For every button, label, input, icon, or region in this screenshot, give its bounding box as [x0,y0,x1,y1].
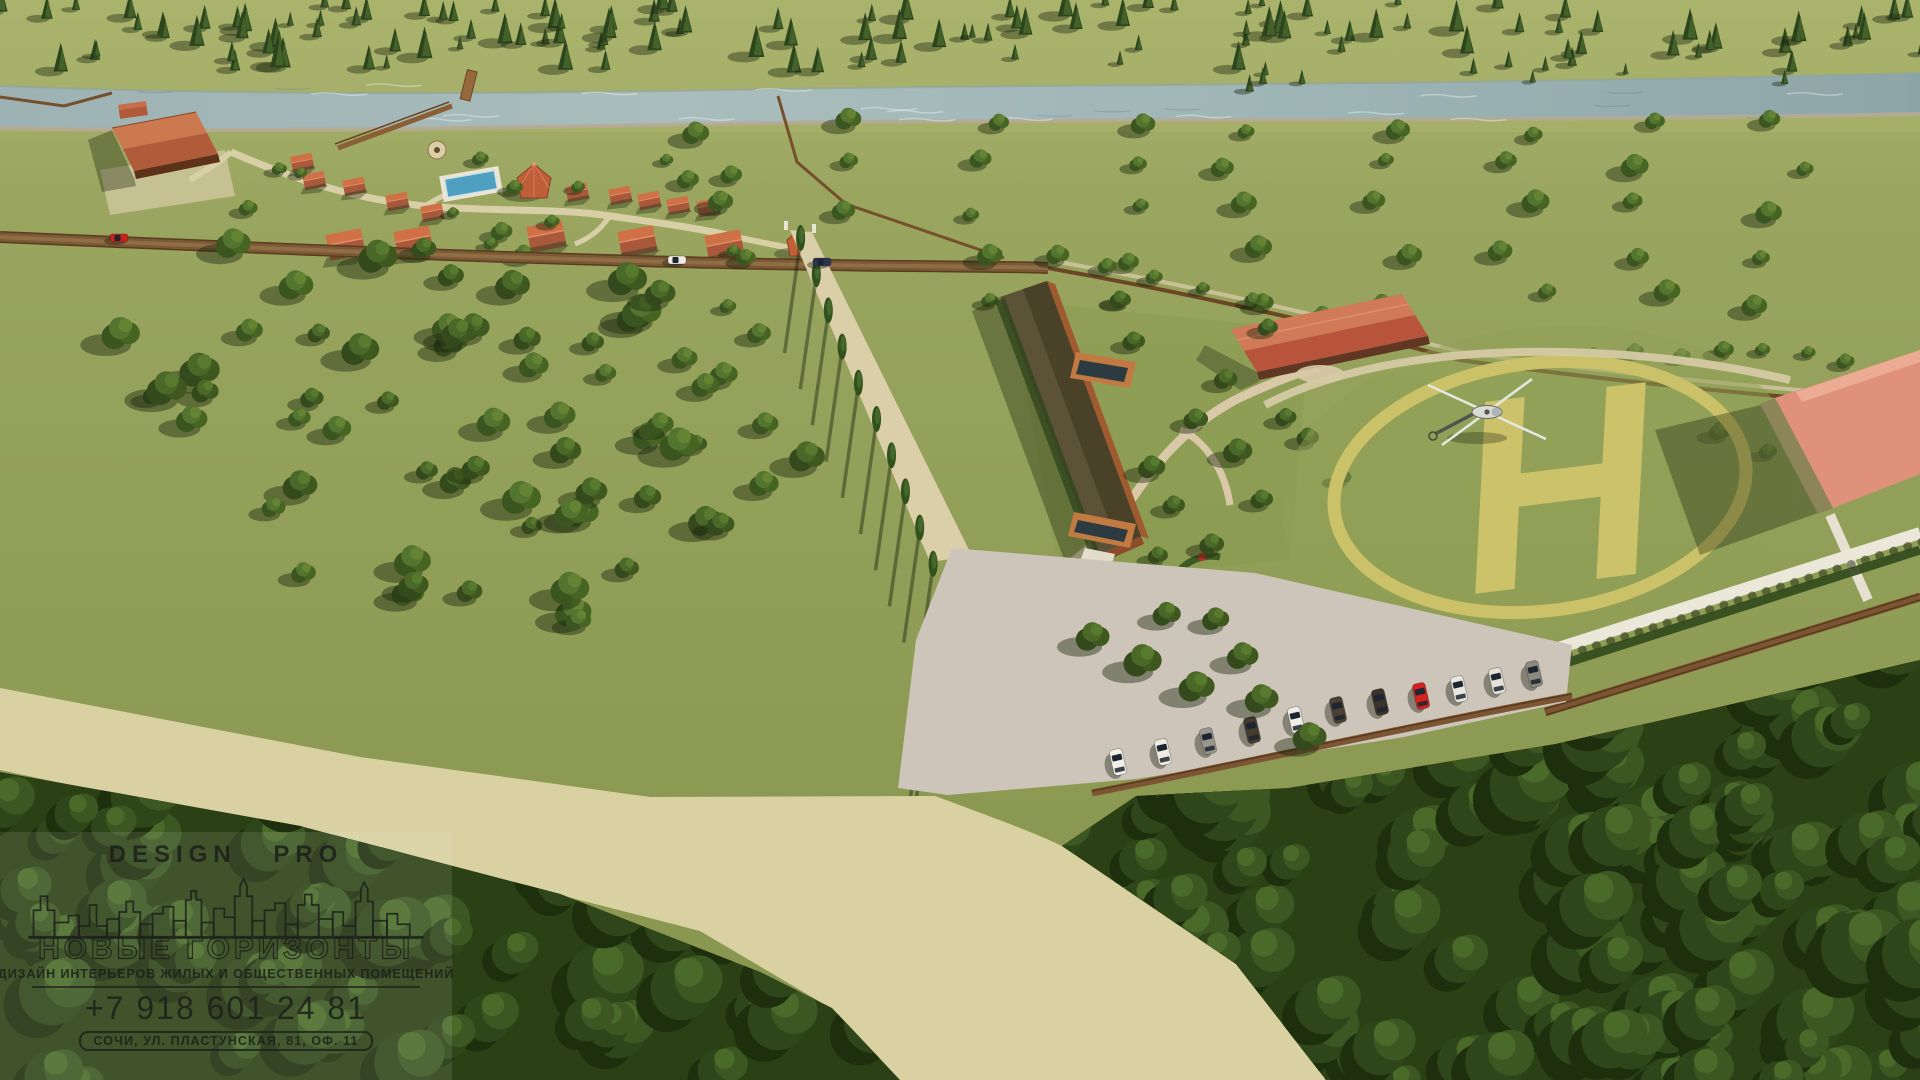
wordmark-graphic: НОВЫЕ ГОРИЗОНТЫ [2,932,450,966]
gate-post [784,221,788,230]
render-canvas: H [0,0,1920,1080]
divider-line [32,986,420,988]
pergola [428,141,446,159]
helipad-h-marking: H [1454,319,1667,655]
watermark-logo: DESIGN PRO НОВЫЕ ГОРИЗОНТ [0,832,452,1080]
gate-post [812,224,816,233]
wordmark: НОВЫЕ ГОРИЗОНТЫ [38,932,414,965]
phone-number: +7 918 601 24 81 [85,990,367,1027]
skyline-graphic [6,870,446,940]
studio-name: DESIGN PRO [109,841,344,869]
tagline: ДИЗАЙН ИНТЕРЬЕРОВ ЖИЛЫХ И ОБЩЕСТВЕННЫХ П… [0,967,454,981]
address-badge: СОЧИ, УЛ. ПЛАСТУНСКАЯ, 81, ОФ. 11 [79,1031,372,1051]
